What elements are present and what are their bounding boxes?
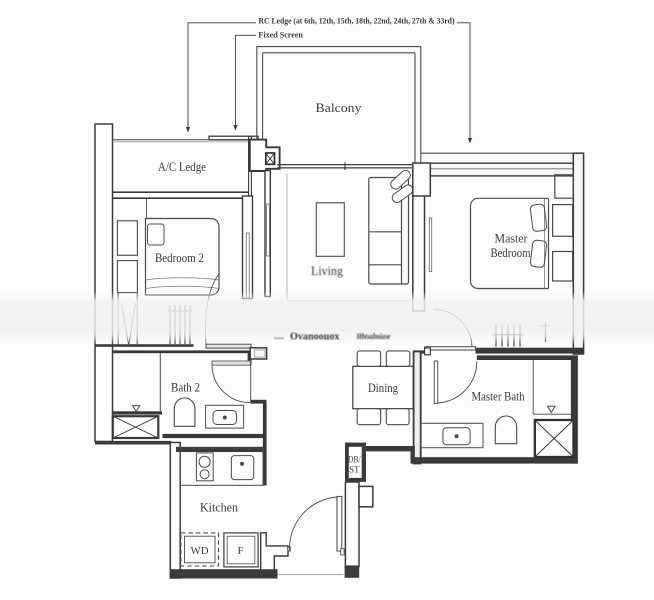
svg-text:Ovanoouox: Ovanoouox xyxy=(290,332,340,343)
svg-text:RC Ledge (at 6th, 12th, 15th,: RC Ledge (at 6th, 12th, 15th, 18th, 22nd… xyxy=(259,17,455,26)
svg-text:Dining: Dining xyxy=(368,381,399,395)
svg-text:Master Bath: Master Bath xyxy=(472,390,526,404)
svg-text:Fixed Screen: Fixed Screen xyxy=(258,30,303,40)
svg-text:ST: ST xyxy=(349,466,360,476)
svg-text:A/C Ledge: A/C Ledge xyxy=(158,160,206,174)
svg-text:.....: ..... xyxy=(274,332,284,341)
svg-text:Master: Master xyxy=(495,232,529,246)
svg-text:Kitchen: Kitchen xyxy=(200,501,239,515)
svg-text:WD: WD xyxy=(191,545,209,557)
svg-text:Balcony: Balcony xyxy=(316,101,363,115)
svg-text:Bedroom 2: Bedroom 2 xyxy=(155,251,204,265)
svg-text:DB/: DB/ xyxy=(348,456,361,466)
svg-text:F: F xyxy=(237,545,243,557)
svg-text:Bedroom: Bedroom xyxy=(491,246,531,260)
svg-text:Bath 2: Bath 2 xyxy=(171,381,200,395)
svg-text:Living: Living xyxy=(311,264,344,278)
svg-text:Hbtsalmiase: Hbtsalmiase xyxy=(356,331,391,341)
